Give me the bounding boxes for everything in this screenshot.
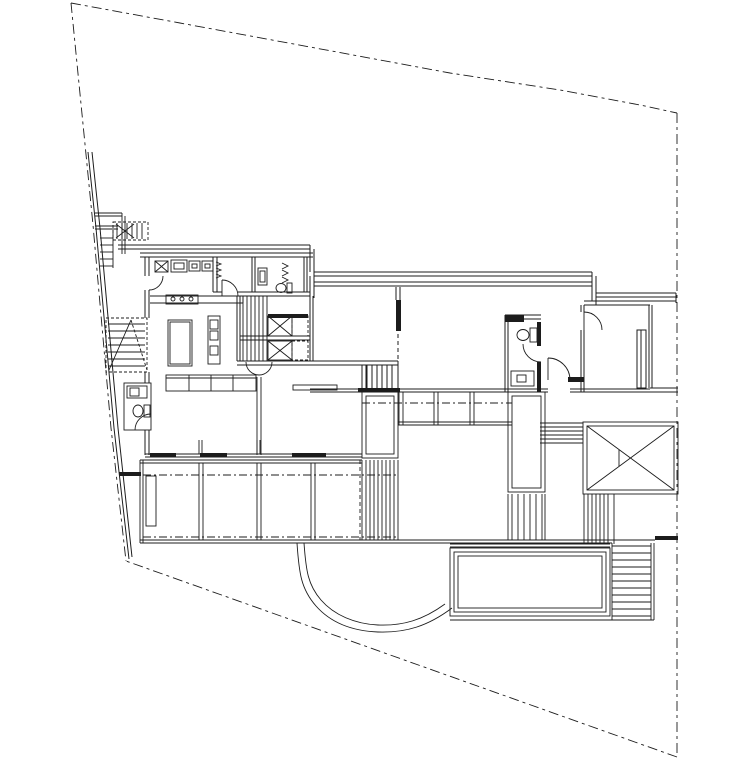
living-furniture [166,375,256,391]
central-stair [240,296,337,455]
terrace-pergola [140,460,655,543]
south-glass-wall [145,440,362,457]
wc-left [124,383,151,430]
floor-plan-svg [0,0,750,763]
site-boundary [71,3,677,757]
pool-stair [612,543,654,620]
bathroom-top-fixtures [258,263,292,293]
skylight [540,422,678,494]
west-exterior-stair [106,318,147,372]
floor-plan-canvas [0,0,750,763]
curved-garden-path [297,543,452,632]
kitchen-fixtures [150,260,243,366]
walkway-bridge [362,392,512,425]
planters-and-ramps [362,392,614,544]
bathroom-right-fixtures [511,328,537,386]
